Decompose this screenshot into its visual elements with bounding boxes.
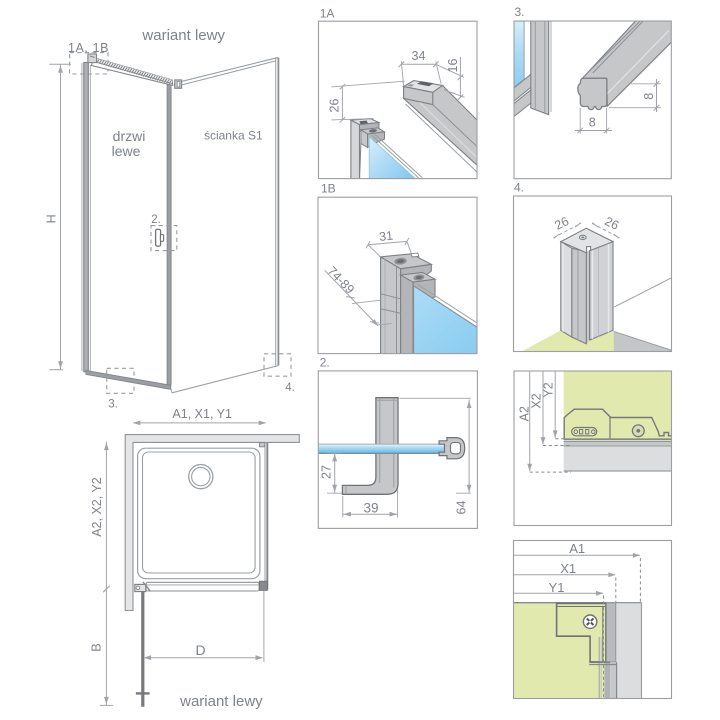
svg-text:2.: 2. <box>320 356 330 370</box>
svg-text:ścianka S1: ścianka S1 <box>204 129 263 143</box>
svg-text:D: D <box>195 642 205 658</box>
svg-text:X1: X1 <box>560 561 576 576</box>
svg-text:8: 8 <box>589 116 596 130</box>
svg-text:3.: 3. <box>515 5 525 19</box>
svg-text:3.: 3. <box>108 399 118 411</box>
svg-text:lewe: lewe <box>112 143 141 159</box>
svg-text:27: 27 <box>320 465 334 479</box>
svg-text:26: 26 <box>328 99 342 113</box>
svg-text:4.: 4. <box>285 382 295 394</box>
svg-text:wariant lewy: wariant lewy <box>179 693 263 710</box>
svg-text:31: 31 <box>378 229 393 244</box>
svg-text:16: 16 <box>446 59 460 73</box>
svg-text:Y1: Y1 <box>549 580 565 595</box>
svg-text:8: 8 <box>642 93 656 100</box>
svg-text:drzwi: drzwi <box>113 128 146 144</box>
svg-text:1A: 1A <box>320 7 335 21</box>
svg-text:B: B <box>89 643 104 652</box>
svg-text:64: 64 <box>454 501 468 515</box>
svg-text:39: 39 <box>363 500 378 515</box>
svg-text:wariant lewy: wariant lewy <box>141 27 225 44</box>
svg-text:A1, X1, Y1: A1, X1, Y1 <box>172 407 232 421</box>
svg-text:4.: 4. <box>514 181 524 195</box>
svg-text:A2, X2, Y2: A2, X2, Y2 <box>90 477 104 537</box>
svg-text:1B: 1B <box>321 182 336 196</box>
svg-text:Y2: Y2 <box>542 382 556 397</box>
svg-text:34: 34 <box>412 49 426 63</box>
svg-text:2.: 2. <box>151 214 161 226</box>
svg-text:H: H <box>44 214 58 223</box>
svg-text:A1: A1 <box>569 541 585 556</box>
